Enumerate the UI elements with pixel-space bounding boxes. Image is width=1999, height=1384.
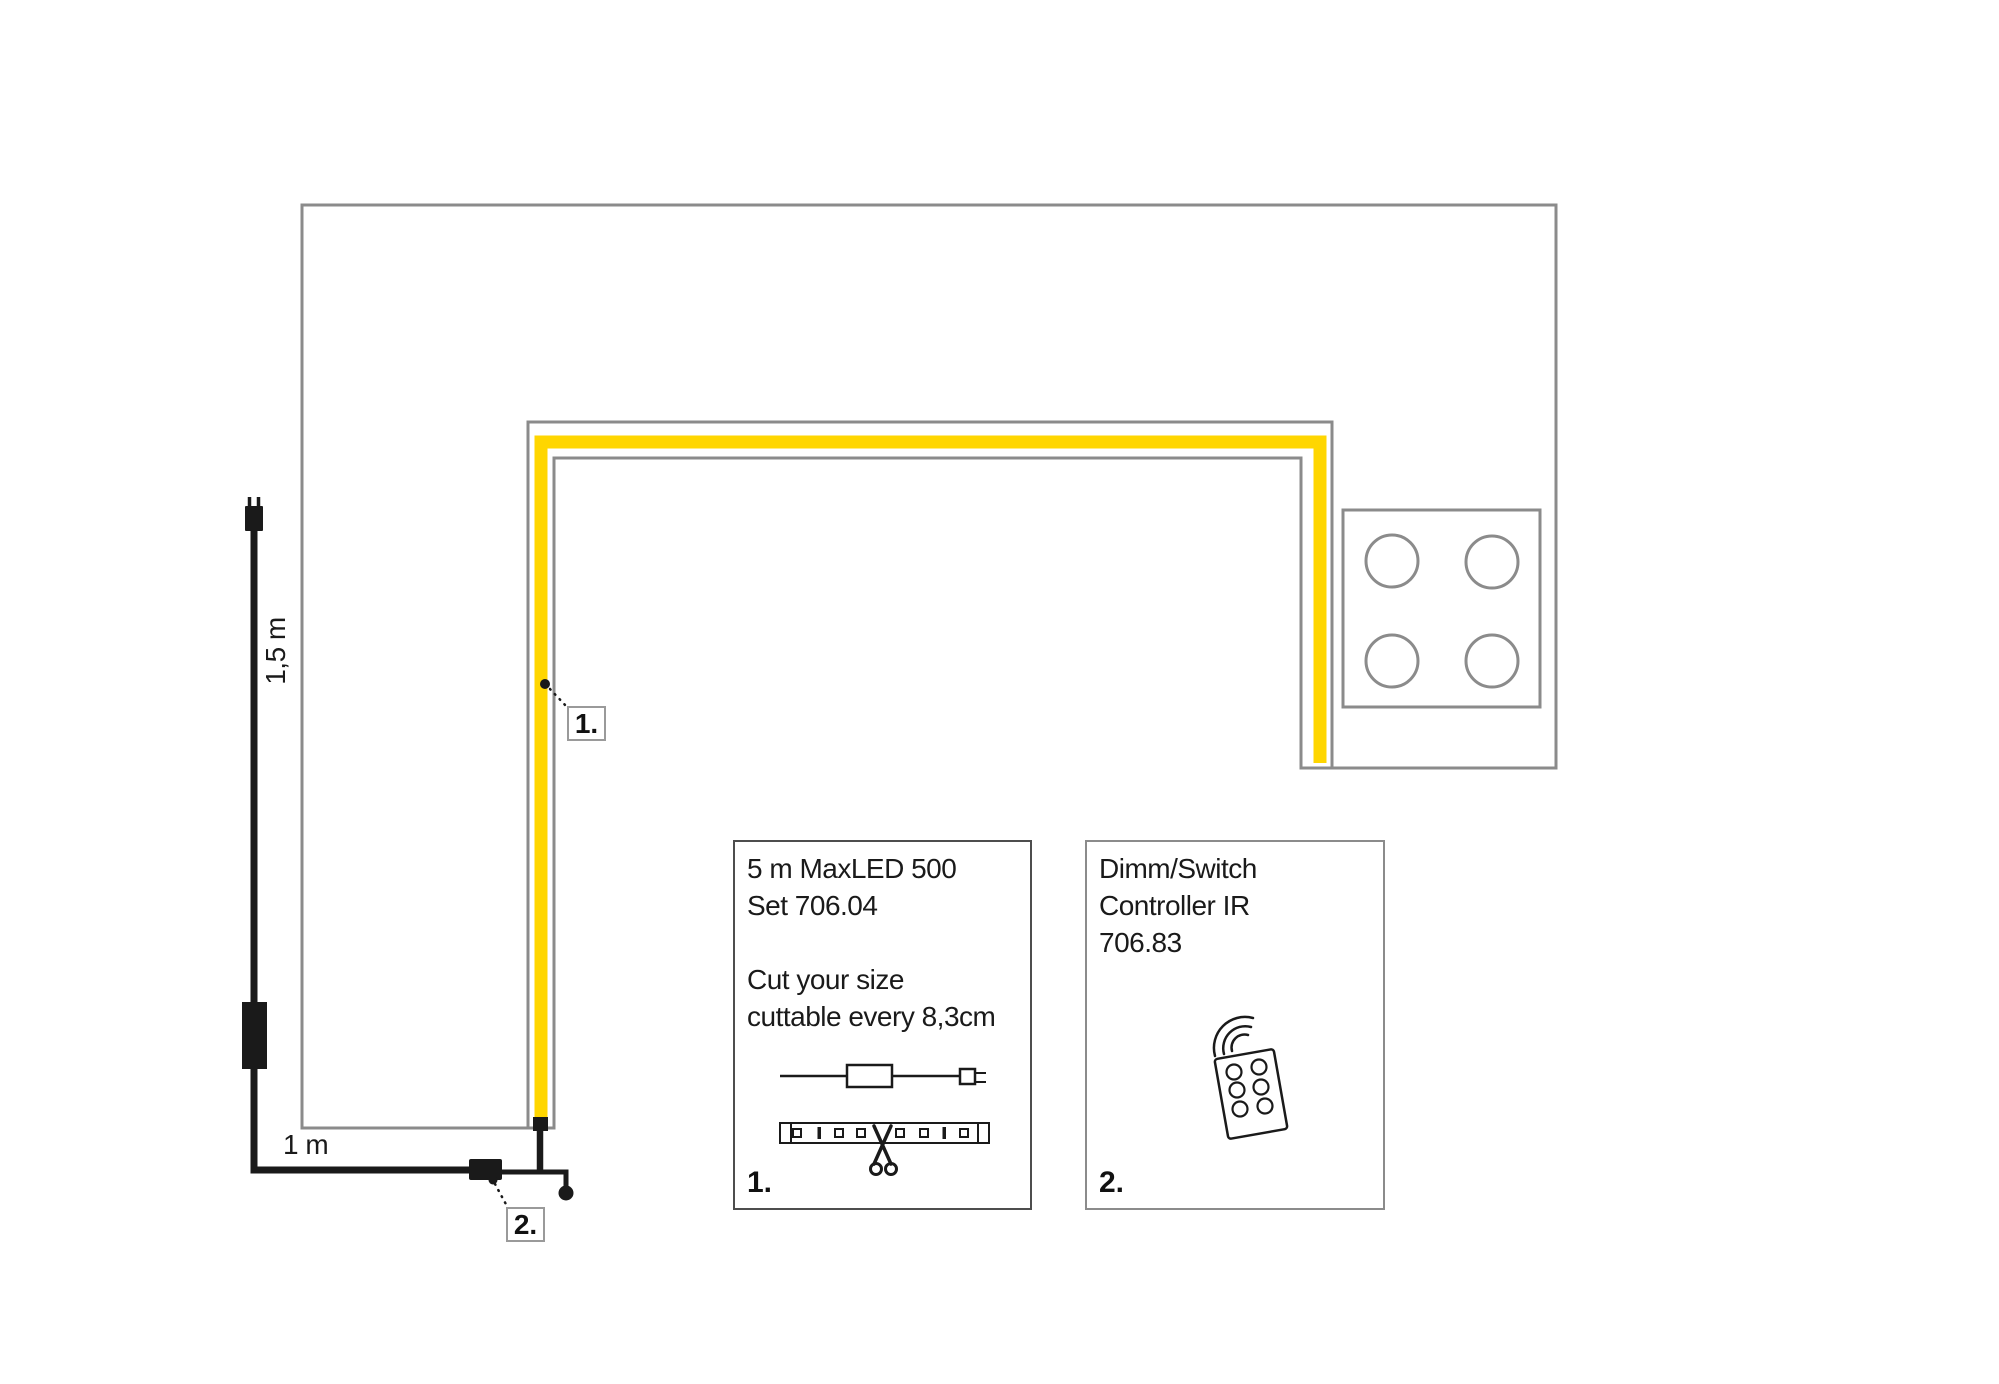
burner-top-left bbox=[1366, 535, 1418, 587]
ir-receiver-icon bbox=[559, 1186, 574, 1201]
cord-plug-prongs-icon bbox=[975, 1073, 986, 1082]
controller-illustration bbox=[1087, 842, 1383, 1208]
power-cable bbox=[242, 497, 480, 1170]
ir-receiver-cable bbox=[500, 1172, 566, 1186]
strip-illustration bbox=[780, 1123, 989, 1175]
cord-driver-icon bbox=[847, 1065, 892, 1087]
inline-driver-icon bbox=[242, 1002, 267, 1069]
burner-bottom-right bbox=[1466, 635, 1518, 687]
callout-2-anchor-dot bbox=[489, 1176, 498, 1185]
strip-connector-icon bbox=[533, 1117, 548, 1131]
remote-icon bbox=[1214, 1049, 1287, 1139]
callout-box-2: 2. bbox=[506, 1207, 545, 1242]
burner-bottom-left bbox=[1366, 635, 1418, 687]
cable-length-vertical-label: 1,5 m bbox=[260, 617, 292, 685]
info-box-controller: Dimm/Switch Controller IR 706.83 bbox=[1085, 840, 1385, 1210]
plug-icon bbox=[245, 506, 263, 531]
cord-plug-icon bbox=[960, 1069, 975, 1084]
callout-2-leader-line bbox=[495, 1184, 508, 1208]
installation-diagram: 1,5 m 1 m 1. 2. 5 m MaxLED 500 Set 706.0… bbox=[0, 0, 1999, 1384]
cooktop-icon bbox=[1343, 510, 1540, 707]
ir-waves-icon bbox=[1214, 1017, 1253, 1056]
controller-assembly bbox=[469, 1117, 574, 1201]
callout-1-leader-line bbox=[550, 689, 566, 706]
led-set-illustration bbox=[735, 842, 1030, 1208]
remote-body bbox=[1214, 1049, 1287, 1139]
info-box-2-number: 2. bbox=[1099, 1166, 1124, 1200]
callout-box-1: 1. bbox=[567, 706, 606, 741]
cord-illustration bbox=[780, 1065, 986, 1087]
plug-prongs-icon bbox=[250, 497, 259, 507]
callout-1-anchor-dot bbox=[540, 679, 550, 689]
burner-top-right bbox=[1466, 536, 1518, 588]
controller-icon bbox=[469, 1159, 502, 1180]
cable-length-horizontal-label: 1 m bbox=[283, 1129, 328, 1161]
info-box-1-number: 1. bbox=[747, 1166, 772, 1200]
info-box-led-set: 5 m MaxLED 500 Set 706.04 Cut your size … bbox=[733, 840, 1032, 1210]
callout-1-label: 1. bbox=[575, 708, 598, 740]
callout-2-label: 2. bbox=[514, 1209, 537, 1241]
